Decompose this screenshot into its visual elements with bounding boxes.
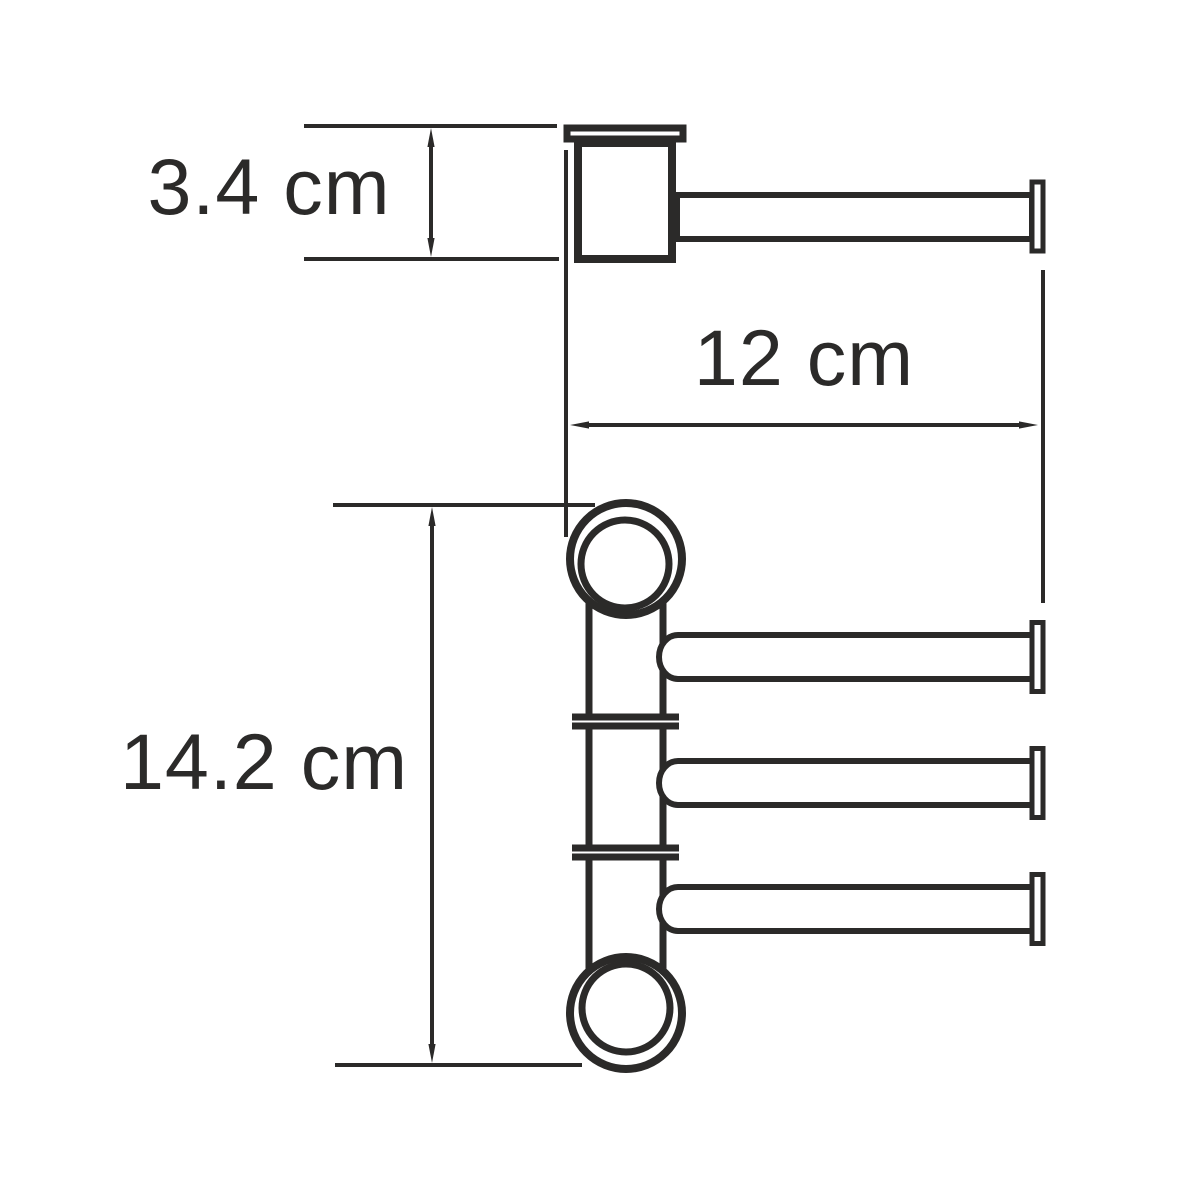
arrow-right-icon (1019, 421, 1038, 428)
arm-end-cap-3 (1032, 875, 1043, 944)
swivel-arm-1 (659, 635, 1033, 679)
post-segment-2 (589, 726, 663, 848)
arrow-down-icon (428, 1044, 435, 1063)
side-view-wall-plate (567, 128, 683, 139)
dimension-mount-depth: 3.4 cm (147, 126, 559, 259)
dimension-label-holder-height: 14.2 cm (120, 717, 408, 806)
dimension-label-mount-depth: 3.4 cm (147, 142, 390, 231)
side-view-arm-end-cap (1032, 182, 1043, 251)
arrow-down-icon (427, 238, 434, 257)
arm-end-cap-1 (1032, 623, 1043, 692)
arrow-left-icon (570, 421, 589, 428)
swivel-arm-3 (659, 887, 1033, 931)
arrow-up-icon (428, 507, 435, 526)
technical-drawing-page: 3.4 cm 12 cm (0, 0, 1200, 1200)
side-view-mount-body (578, 143, 672, 259)
towel-holder-dimension-drawing: 3.4 cm 12 cm (0, 0, 1200, 1200)
front-view (570, 503, 1043, 1069)
side-view-arm-bar (677, 195, 1032, 239)
arrow-up-icon (427, 128, 434, 147)
dimension-holder-height: 14.2 cm (120, 505, 595, 1065)
arm-end-cap-2 (1032, 749, 1043, 818)
side-view (567, 128, 1043, 259)
dimension-label-arm-length: 12 cm (694, 313, 914, 402)
swivel-arm-2 (659, 761, 1033, 805)
